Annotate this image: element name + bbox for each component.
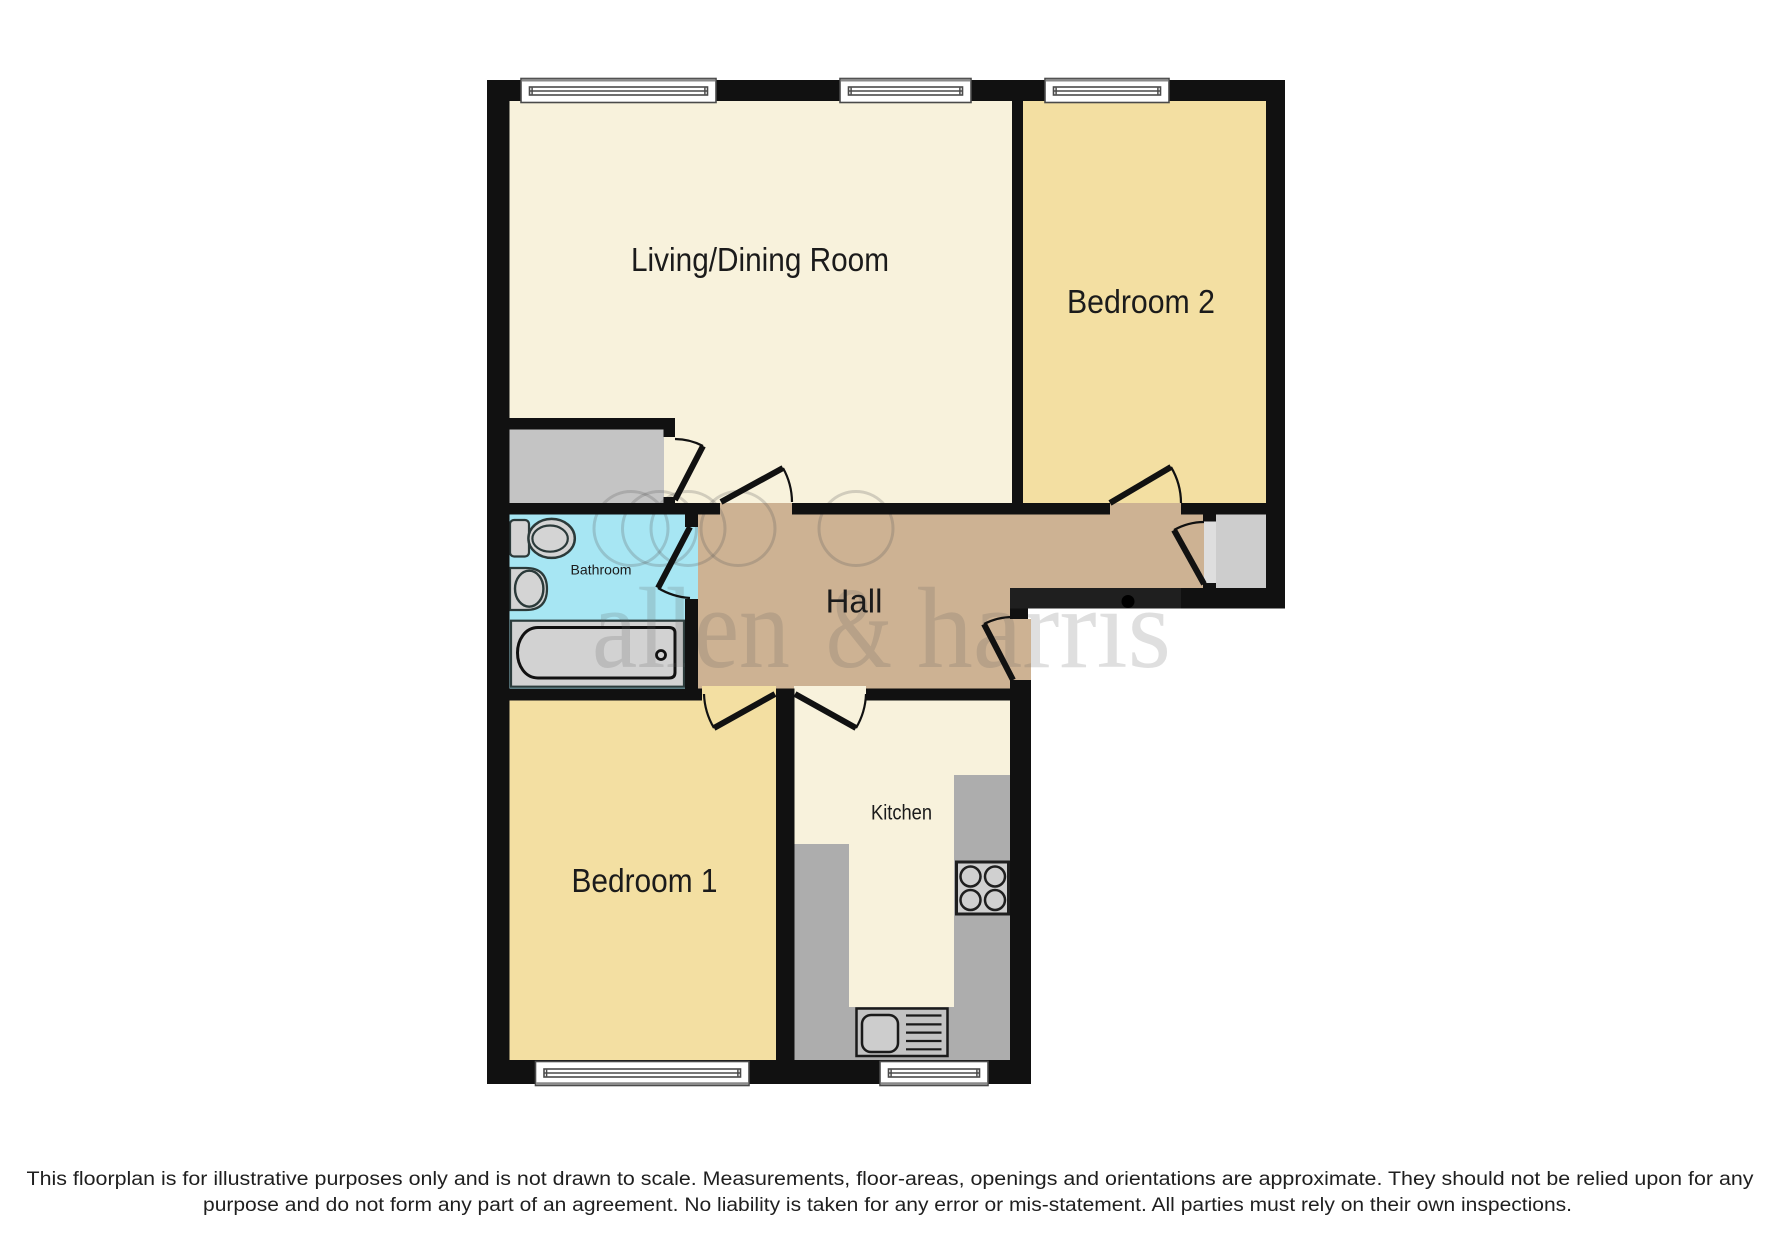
svg-text:Kitchen: Kitchen <box>871 801 932 825</box>
svg-text:purpose and do not form any pa: purpose and do not form any part of an a… <box>203 1195 1572 1216</box>
svg-text:This floorplan is for illustra: This floorplan is for illustrative purpo… <box>27 1169 1755 1190</box>
svg-text:Hall: Hall <box>826 583 883 620</box>
svg-text:Bedroom 1: Bedroom 1 <box>572 862 718 899</box>
svg-text:Living/Dining Room: Living/Dining Room <box>631 241 889 278</box>
svg-text:Bathroom: Bathroom <box>571 562 632 578</box>
svg-text:Bedroom 2: Bedroom 2 <box>1067 283 1215 320</box>
svg-text:harris: harris <box>917 565 1171 692</box>
